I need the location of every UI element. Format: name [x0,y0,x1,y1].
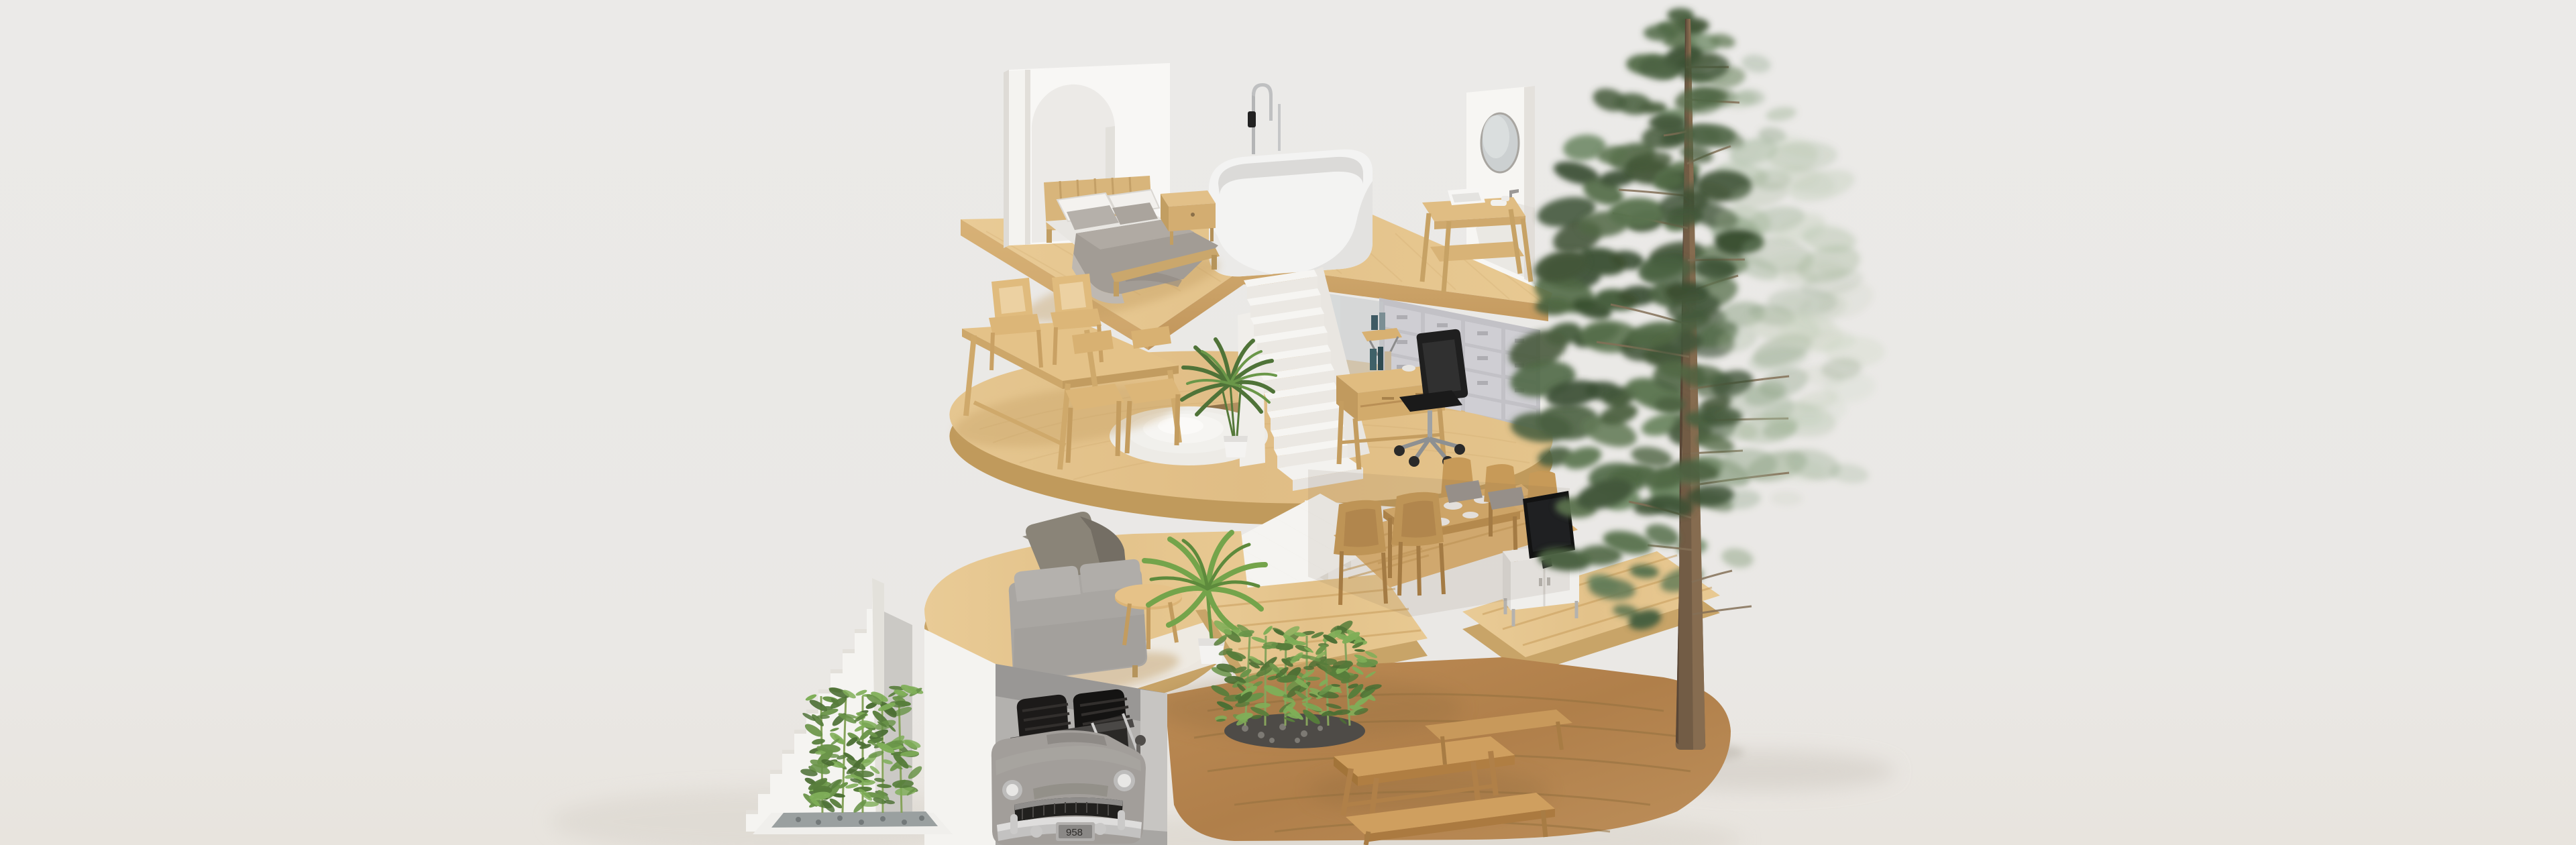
svg-text:958: 958 [1066,827,1083,838]
